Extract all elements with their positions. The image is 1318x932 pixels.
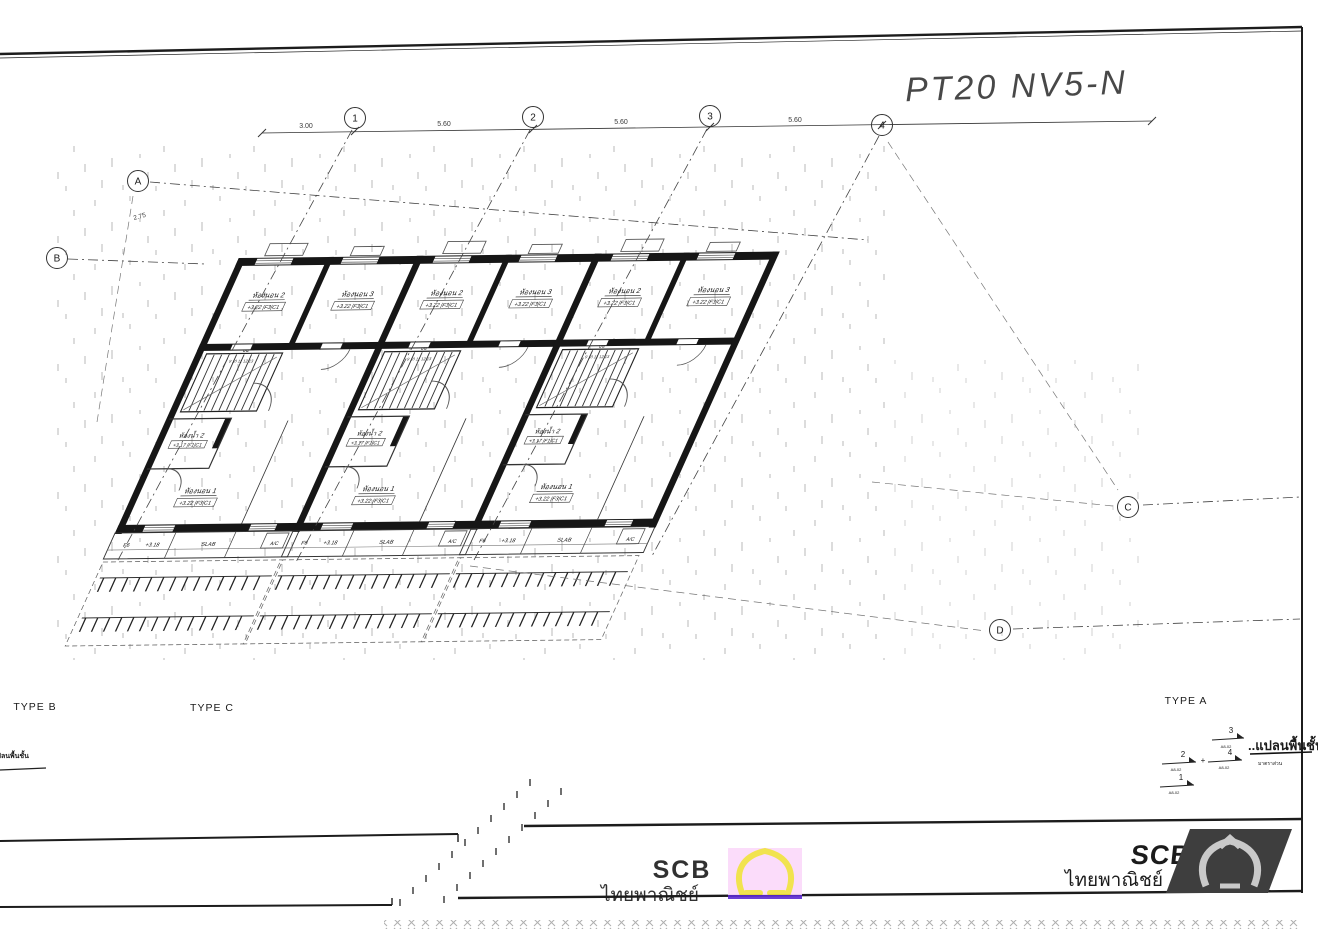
keyplan-mark-1: 1 [1179,773,1184,782]
keyplan-sub-2: A8-02 [1171,767,1182,772]
blueprint-svg: 9 10 11 12 13 บน F6 +3.18 SLAB A/C [0,0,1318,932]
corner-stamp-text: แปลนพื้นชั้น [0,749,29,760]
scanned-blueprint-sheet: 9 10 11 12 13 บน F6 +3.18 SLAB A/C [0,0,1318,932]
fold-stitch-marks [400,779,561,906]
key-plan: 1 2 3 4 + A8-02 A8-02 A8-02 A8-02 ..แปลน… [1160,726,1318,795]
keyplan-sub-3: A8-02 [1221,744,1232,749]
scan-noise-right [890,360,1140,660]
scb-logo-block: SCB ไทยพาณิชย์ [1063,829,1292,893]
keyplan-caption: ..แปลนพื้นชั้น [1248,735,1318,753]
type-b-label: TYPE B [13,701,56,713]
grid-bubble-B: B [54,254,61,265]
scb-watermark: SCB ไทยพาณิชย์ [599,848,802,906]
keyplan-scale-note: มาตราส่วน [1258,761,1283,767]
dim-bay-3-4: 5.60 [788,117,802,124]
dim-bay-2-3: 5.60 [614,119,628,126]
keyplan-mark-4: 4 [1228,748,1233,757]
grid-bubble-D: D [996,626,1003,637]
keyplan-mark-3: 3 [1229,726,1234,735]
corner-stamp: แปลนพื้นชั้น [0,749,46,770]
keyplan-mark-2: 2 [1181,750,1186,759]
grid-bubble-2: 2 [530,113,536,124]
dim-bay-1-2: 5.60 [437,121,451,128]
keyplan-plus: + [1201,756,1206,765]
dim-left-bay: 3.00 [299,123,313,130]
grid-bubble-1: 1 [352,114,358,125]
grid-bubble-4: 4 [879,121,885,132]
grid-bubble-A: A [135,177,142,188]
grid-bubble-3: 3 [707,112,713,123]
type-labels: TYPE B TYPE C TYPE A [13,695,1207,714]
type-c-label: TYPE C [190,702,234,714]
grid-bubble-C: C [1124,503,1131,514]
handwritten-drawing-title: PT20 NV5-N [904,64,1128,110]
logo-thai-text: ไทยพาณิชย์ [1063,869,1163,891]
keyplan-sub-4: A8-02 [1219,765,1230,770]
watermark-scb-text: SCB [653,856,712,884]
keyplan-sub-1: A8-02 [1169,790,1180,795]
type-a-label: TYPE A [1165,695,1208,707]
watermark-thai-text: ไทยพาณิชย์ [599,884,699,906]
bottom-zigzag-edge [384,920,1300,929]
